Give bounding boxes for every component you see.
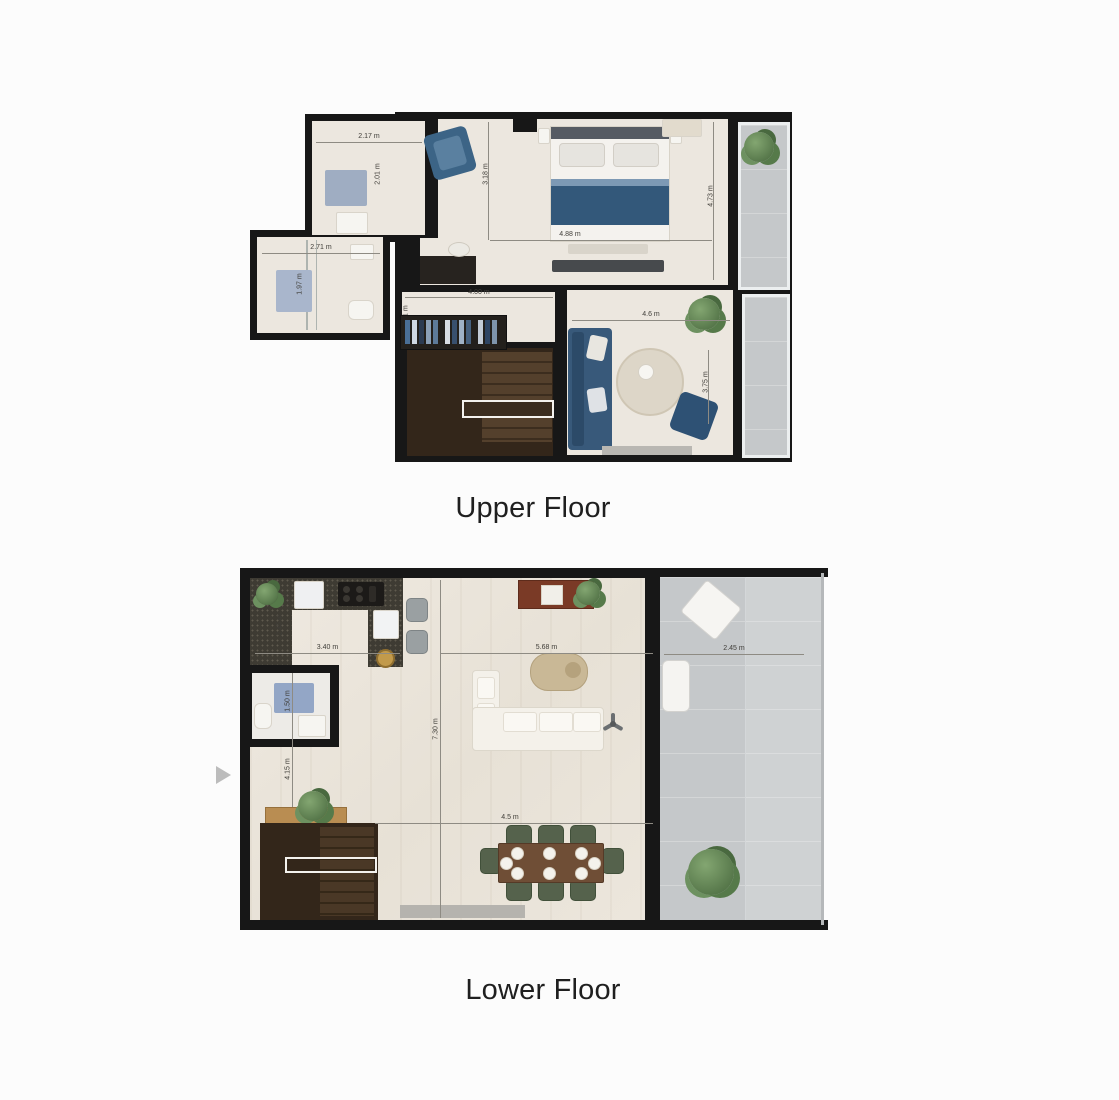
bed-pillow-left xyxy=(559,143,605,167)
sofa-blue xyxy=(568,328,612,450)
bed-blanket xyxy=(551,179,669,225)
terrace-floor xyxy=(660,577,824,920)
arrow-right-icon xyxy=(216,766,231,784)
bed-bench xyxy=(568,244,648,254)
upper-floor-plan: 2.17 m 2.01 m 2.71 m 1.97 m xyxy=(250,112,792,464)
wardrobe-clothes xyxy=(478,320,483,344)
tvroom-dimline xyxy=(572,320,730,321)
burner xyxy=(356,595,363,602)
tv-console xyxy=(552,260,664,272)
dining-chair xyxy=(602,848,624,874)
terrace-plant-icon xyxy=(688,849,734,895)
page: 2.17 m 2.01 m 2.71 m 1.97 m xyxy=(0,0,1119,1100)
bar-stool xyxy=(406,630,428,654)
bedroom2-dimline xyxy=(316,142,422,143)
side-table xyxy=(638,364,654,380)
terrace-bottom-wall xyxy=(660,920,828,930)
chimney-block xyxy=(513,112,537,132)
living-dimline xyxy=(440,653,653,654)
burner xyxy=(343,586,350,593)
bed-blanket-fold xyxy=(551,179,669,186)
sofa-backrest xyxy=(572,332,584,446)
bedroom1-dimline xyxy=(490,240,712,241)
wardrobe-clothes xyxy=(459,320,464,344)
wardrobe xyxy=(400,315,507,350)
stairs-steps xyxy=(482,352,552,442)
tvroom-width-label: 4.6 m xyxy=(572,311,730,319)
terrace-dimline xyxy=(664,654,804,655)
wardrobe-clothes xyxy=(485,320,490,344)
dining-width-label: 4.5 m xyxy=(460,814,560,822)
wardrobe-clothes xyxy=(492,320,497,344)
sofa-pillow xyxy=(586,334,609,361)
stairs-railing xyxy=(462,400,554,418)
wardrobe-clothes xyxy=(452,320,457,344)
tvroom-depth-label: 3.75 m xyxy=(703,371,711,392)
bedroom2-dresser xyxy=(336,212,368,234)
upper-floor-title: Upper Floor xyxy=(0,492,1066,525)
vanity-desk xyxy=(662,119,702,137)
desk xyxy=(420,256,476,284)
upper-balcony-bottom-floor xyxy=(742,294,790,458)
living-depth-label: 7.30 m xyxy=(433,718,441,739)
stove-panel xyxy=(369,586,376,602)
living-width-label: 5.68 m xyxy=(440,644,653,652)
ceiling-fan-icon xyxy=(602,713,624,735)
terrace-bench xyxy=(662,660,690,712)
burner xyxy=(343,595,350,602)
dining-dimline xyxy=(375,823,653,824)
bedroom1-depth-label: 3.18 m xyxy=(483,163,491,184)
kitchen-dimline xyxy=(255,653,400,654)
carousel-next-icon[interactable] xyxy=(216,766,231,784)
terrace-top-wall xyxy=(660,568,828,577)
kitchen-appliance xyxy=(294,581,324,609)
media-bench xyxy=(400,905,525,918)
wardrobe-clothes xyxy=(426,320,431,344)
sofa-cushion xyxy=(503,712,537,732)
bathroom-depth-label: 1.97 m xyxy=(297,273,305,294)
hallway-width-label: 4.00 m xyxy=(405,289,553,297)
bedroom2-rug xyxy=(325,170,367,206)
lower-floor-title: Lower Floor xyxy=(0,974,1086,1007)
burner xyxy=(356,586,363,593)
sideboard-art xyxy=(541,585,563,605)
bedroom2-width-label: 2.17 m xyxy=(316,133,422,141)
armchair-cushion xyxy=(432,135,467,172)
lower-stairs-railing xyxy=(285,857,377,873)
bedroom1-width-label: 4.88 m xyxy=(490,231,650,239)
sideboard-plant-icon xyxy=(576,581,600,605)
hallway-dimline xyxy=(405,297,553,298)
nightstand-left xyxy=(538,128,550,144)
wardrobe-clothes xyxy=(433,320,438,344)
lower-bathroom-toilet xyxy=(254,703,272,729)
lower-bathroom-rug xyxy=(274,683,314,713)
round-rug xyxy=(616,348,684,416)
wardrobe-clothes xyxy=(466,320,471,344)
terrace-tile-panel xyxy=(745,577,825,920)
lower-hallway-depth-label: 4.15 m xyxy=(285,758,293,779)
lower-stairs xyxy=(260,823,378,920)
bathroom-dimline xyxy=(262,253,380,254)
sofa-cushion xyxy=(539,712,573,732)
lower-bathroom-vanity xyxy=(298,715,326,737)
fan-hub xyxy=(610,721,616,727)
wardrobe-clothes xyxy=(412,320,417,344)
bathroom-mat xyxy=(276,270,312,312)
bedroom2-depth-label: 2.01 m xyxy=(375,163,383,184)
living-vline xyxy=(440,580,441,918)
kitchen-plant-icon xyxy=(256,583,278,605)
desk-chair xyxy=(448,242,470,257)
kitchen-sink xyxy=(373,610,399,639)
balcony-depth-label: 4.73 m xyxy=(708,185,716,206)
wardrobe-clothes xyxy=(405,320,410,344)
stove xyxy=(338,582,384,606)
console-plant-icon xyxy=(298,791,328,821)
sofa-pillow xyxy=(477,677,495,699)
balcony-plant-icon xyxy=(744,132,774,162)
terrace-width-label: 2.45 m xyxy=(664,645,804,653)
lower-floor-plan: 3.40 m 2.45 m 1.50 m 4.15 m xyxy=(240,565,830,933)
bar-stool xyxy=(406,598,428,622)
sofa-main xyxy=(472,707,604,751)
lower-bathroom-depth-label: 1.50 m xyxy=(285,690,293,711)
terrace-balustrade xyxy=(821,573,824,925)
bed-pillow-right xyxy=(613,143,659,167)
dining-table xyxy=(498,843,604,883)
bathroom-width-label: 2.71 m xyxy=(262,244,380,252)
coffee-table xyxy=(530,653,588,691)
bed xyxy=(550,126,670,242)
tvroom-cabinet xyxy=(602,446,692,455)
wardrobe-clothes xyxy=(419,320,424,344)
coffee-table-tray xyxy=(565,662,581,678)
kitchen-depth-label: 2.45 m xyxy=(277,614,285,635)
bathroom-toilet xyxy=(348,300,374,320)
kitchen-width-label: 3.40 m xyxy=(255,644,400,652)
wardrobe-clothes xyxy=(445,320,450,344)
bed-headboard xyxy=(551,127,669,139)
sofa-pillow xyxy=(586,387,607,413)
sofa-cushion xyxy=(573,712,601,732)
